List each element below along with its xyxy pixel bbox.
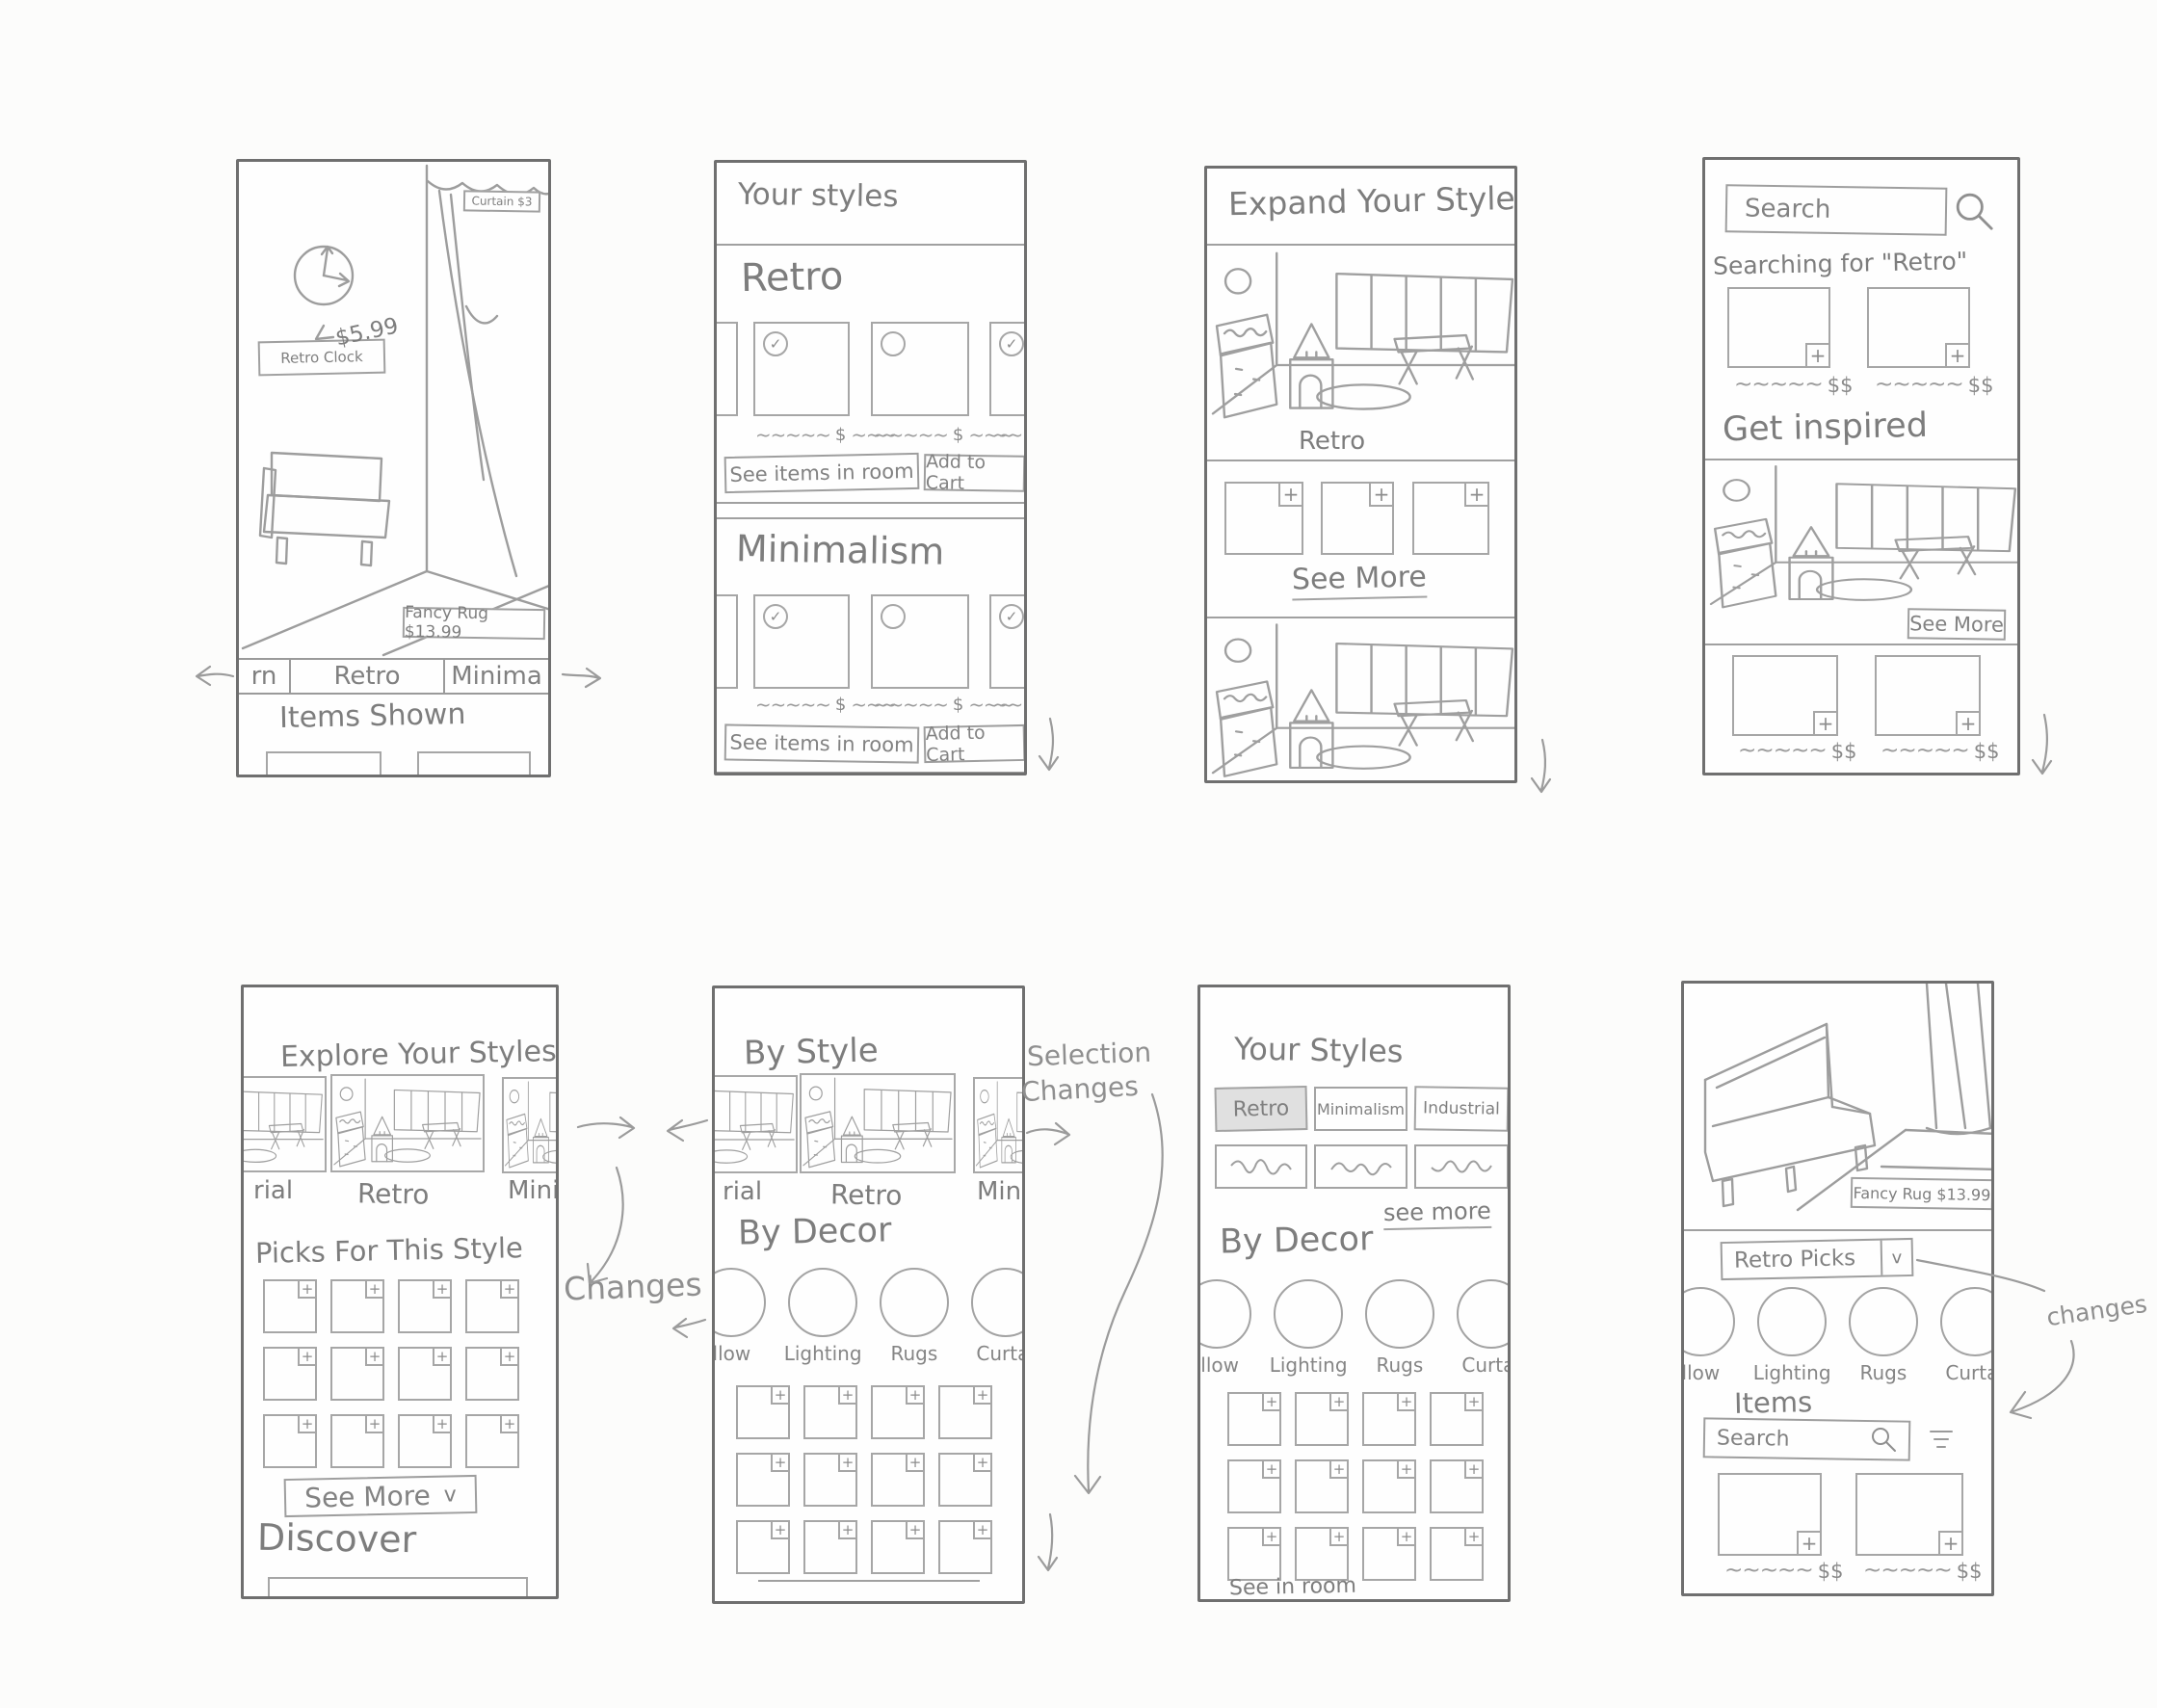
style-thumbnail-minimalism[interactable] [502, 1077, 559, 1173]
style-chip-industrial[interactable]: Industrial [1414, 1086, 1510, 1132]
product-card[interactable] [871, 322, 969, 416]
divider [1705, 644, 2017, 645]
arrow-down-icon [2033, 715, 2051, 774]
screen-room-view: Curtain $3 Retro Clock $5.99 Fancy Rug $… [236, 159, 551, 777]
product-card[interactable] [263, 1414, 317, 1468]
product-card[interactable] [330, 1279, 384, 1333]
see-items-in-room-button[interactable]: See items in room [724, 453, 920, 493]
see-more-link[interactable]: See More [1292, 561, 1428, 601]
product-card[interactable] [1430, 1392, 1484, 1446]
section-title-retro: Retro [741, 254, 844, 301]
decor-category-lighting[interactable]: Lighting [777, 1268, 869, 1365]
add-icon[interactable] [1397, 1392, 1416, 1411]
add-icon[interactable] [906, 1453, 925, 1472]
add-icon[interactable] [1262, 1459, 1281, 1479]
style-thumbnail-retro[interactable] [800, 1073, 956, 1173]
room-illustration [239, 162, 551, 658]
category-circle [1365, 1279, 1434, 1349]
swatch-squiggle [1328, 1154, 1395, 1179]
divider [1207, 460, 1514, 461]
product-name-squiggle [992, 696, 1027, 715]
inspiration-room-illustration [1707, 461, 2020, 614]
style-swatch[interactable] [1314, 1144, 1407, 1189]
add-icon[interactable] [1813, 711, 1838, 736]
product-card[interactable] [1362, 1459, 1416, 1513]
discover-title: Discover [257, 1516, 417, 1562]
divider [1684, 1229, 1991, 1231]
price-line: $$ [1881, 740, 2000, 763]
carousel-label: Mini [977, 1177, 1025, 1206]
curtain-price-tag: Curtain $3 [463, 190, 540, 212]
style-thumbnail-industrial[interactable] [712, 1075, 798, 1173]
price-line: $ [992, 695, 1027, 715]
product-card[interactable] [465, 1414, 519, 1468]
product-card[interactable] [736, 1453, 790, 1507]
product-name-squiggle [1724, 1560, 1813, 1582]
curved-arrow-icon [588, 1168, 623, 1283]
picks-title: Picks For This Style [255, 1231, 523, 1270]
arrow-right-icon [563, 669, 600, 687]
add-icon[interactable] [1262, 1392, 1281, 1411]
result-card[interactable] [1867, 287, 1970, 368]
category-circle [1849, 1287, 1918, 1356]
product-card[interactable] [263, 1347, 317, 1401]
screen-your-styles-chips: Your Styles Retro Minimalism Industrial … [1197, 985, 1511, 1602]
divider [717, 517, 1024, 519]
item-card[interactable] [417, 751, 531, 777]
add-icon[interactable] [1805, 343, 1830, 368]
product-name-squiggle [755, 426, 830, 445]
room-thumb-illustration [504, 1079, 559, 1171]
product-card[interactable] [1227, 1527, 1281, 1581]
tab-retro[interactable]: Retro [289, 660, 443, 693]
product-name-squiggle [1875, 374, 1963, 396]
product-card[interactable] [871, 1520, 925, 1574]
category-circle [1757, 1287, 1827, 1356]
chevron-down-icon[interactable]: v [1881, 1240, 1912, 1275]
result-card[interactable] [1727, 287, 1830, 368]
add-icon[interactable] [906, 1520, 925, 1539]
screen-your-styles-list: Your styles Retro $ $ $ See items in roo… [714, 160, 1027, 775]
category-circle [971, 1268, 1025, 1337]
see-in-room-link[interactable]: See in room [1229, 1574, 1357, 1602]
arrow-down-icon [1039, 719, 1058, 770]
page-title: Your styles [738, 177, 899, 215]
product-card[interactable] [803, 1453, 857, 1507]
product-card[interactable] [938, 1520, 992, 1574]
screen-retro-picks: Fancy Rug $13.99 Retro Picks v llow Ligh… [1681, 981, 1994, 1596]
screen-search: Search Searching for "Retro" $$ $$ Get i… [1702, 157, 2020, 775]
product-card[interactable] [263, 1279, 317, 1333]
product-card[interactable] [1224, 482, 1303, 555]
room-thumb-illustration [975, 1079, 1025, 1171]
divider [717, 244, 1024, 246]
decor-category-curtains[interactable]: Curtai [1445, 1279, 1511, 1377]
add-icon[interactable] [1797, 1531, 1822, 1556]
product-card[interactable] [753, 594, 850, 689]
carousel-label: rial [253, 1176, 293, 1205]
selected-check-icon[interactable] [999, 604, 1024, 629]
item-card[interactable] [266, 751, 381, 777]
decor-category-pillows[interactable]: llow [712, 1268, 777, 1365]
annotation-changes-small: changes [2044, 1290, 2148, 1331]
add-icon[interactable] [1464, 1527, 1484, 1546]
product-card[interactable] [714, 322, 738, 416]
add-icon[interactable] [1369, 482, 1394, 507]
search-input[interactable]: Search [1725, 184, 1948, 236]
long-curved-arrow-icon [1075, 1094, 1163, 1493]
product-card[interactable] [1430, 1527, 1484, 1581]
product-name-squiggle [1863, 1560, 1952, 1582]
page-title: By Style [744, 1032, 879, 1073]
decor-categories: llow Lighting Rugs Curtai [1681, 1287, 1994, 1384]
curved-arrow-icon [2011, 1341, 2074, 1418]
retro-room-illustration [1209, 248, 1517, 425]
add-icon[interactable] [500, 1347, 519, 1366]
add-icon[interactable] [973, 1520, 992, 1539]
product-card[interactable] [736, 1385, 790, 1439]
by-decor-title: By Decor [738, 1211, 892, 1252]
screen-expand-your-styles: Expand Your Styles Retro See More [1204, 166, 1517, 783]
product-card[interactable] [330, 1414, 384, 1468]
product-card[interactable] [938, 1385, 992, 1439]
search-icon[interactable] [1869, 1425, 1898, 1454]
product-card[interactable] [753, 322, 850, 416]
add-icon[interactable] [771, 1385, 790, 1405]
carousel-label: Retro [830, 1178, 903, 1211]
add-icon[interactable] [1938, 1531, 1963, 1556]
result-card[interactable] [1875, 655, 1981, 736]
see-items-in-room-button[interactable]: See items in room [724, 723, 920, 763]
price-line: $ [992, 425, 1027, 445]
product-card[interactable] [803, 1520, 857, 1574]
decor-category-curtains[interactable]: Curtai [1929, 1287, 1994, 1384]
category-circle [1940, 1287, 1994, 1356]
add-icon[interactable] [906, 1385, 925, 1405]
add-icon[interactable] [365, 1279, 384, 1299]
price-line: $$ [1734, 374, 1854, 397]
carousel-label: rial [723, 1177, 762, 1206]
decor-category-pillows[interactable]: illow [1197, 1279, 1263, 1377]
add-icon[interactable] [1278, 482, 1303, 507]
arrow-down-icon [1039, 1514, 1057, 1570]
swatch-squiggle [1227, 1154, 1295, 1179]
add-icon[interactable] [1262, 1527, 1281, 1546]
add-icon[interactable] [298, 1279, 317, 1299]
decor-category-lighting[interactable]: Lighting [1263, 1279, 1355, 1377]
swatch-squiggle [1428, 1154, 1495, 1179]
section-title-minimalism: Minimalism [736, 527, 945, 572]
product-card[interactable] [1362, 1527, 1416, 1581]
add-icon[interactable] [838, 1453, 857, 1472]
divider [758, 1580, 980, 1582]
product-name-squiggle [755, 696, 830, 715]
get-inspired-title: Get inspired [1723, 407, 1929, 449]
room-style-label: Retro [1299, 427, 1365, 456]
screen-explore-your-styles: Explore Your Styles rial Retro Mini Pick… [241, 985, 559, 1599]
decor-grid [1227, 1392, 1497, 1581]
add-to-cart-button[interactable]: Add to Cart [924, 724, 1026, 763]
screen-by-style: By Style rial Retro Mini By Decor llow L… [712, 985, 1025, 1604]
chevron-down-icon: v [443, 1483, 457, 1507]
arrow-left-icon [668, 1120, 707, 1141]
decor-category-rugs[interactable]: Rugs [869, 1268, 960, 1365]
annotation-changes: Changes [563, 1266, 702, 1308]
category-circle [1274, 1279, 1343, 1349]
see-more-link[interactable]: see more [1383, 1197, 1491, 1230]
carousel-label: Retro [357, 1177, 430, 1210]
category-circle [1457, 1279, 1511, 1349]
product-card[interactable] [1227, 1392, 1281, 1446]
product-name-squiggle [992, 426, 1027, 445]
decor-category-rugs[interactable]: Rugs [1355, 1279, 1446, 1377]
product-card[interactable] [736, 1520, 790, 1574]
arrow-left-icon [673, 1319, 705, 1337]
add-icon[interactable] [1464, 1392, 1484, 1411]
price-line: $$ [1738, 740, 1857, 763]
product-card[interactable] [398, 1347, 452, 1401]
wireframe-sketch-page: Curtain $3 Retro Clock $5.99 Fancy Rug $… [0, 0, 2157, 1708]
product-name-squiggle [873, 426, 948, 445]
product-card[interactable] [803, 1385, 857, 1439]
decor-category-lighting[interactable]: Lighting [1747, 1287, 1838, 1384]
search-icon[interactable] [1954, 191, 1994, 231]
decor-category-rugs[interactable]: Rugs [1838, 1287, 1930, 1384]
add-icon[interactable] [973, 1385, 992, 1405]
add-icon[interactable] [500, 1414, 519, 1433]
picks-dropdown[interactable]: Retro Picks v [1721, 1238, 1914, 1280]
tab-minimalism[interactable]: Minima [443, 660, 548, 693]
category-circle [880, 1268, 949, 1337]
product-name-squiggle [1738, 740, 1827, 762]
divider [1207, 617, 1514, 618]
product-card[interactable] [1295, 1527, 1349, 1581]
annotation-selection-changes: Changes [1020, 1070, 1139, 1108]
add-icon[interactable] [973, 1453, 992, 1472]
product-name-squiggle [873, 696, 948, 715]
picks-grid [263, 1279, 533, 1468]
add-icon[interactable] [433, 1414, 452, 1433]
product-card[interactable] [938, 1453, 992, 1507]
product-card[interactable] [1412, 482, 1489, 555]
add-icon[interactable] [1945, 343, 1970, 368]
style-swatch[interactable] [1215, 1144, 1307, 1189]
divider [1705, 459, 2017, 460]
arrow-left-icon [197, 667, 233, 685]
product-card[interactable] [398, 1414, 452, 1468]
add-icon[interactable] [1464, 1459, 1484, 1479]
page-title: Expand Your Styles [1228, 179, 1517, 223]
add-icon[interactable] [1329, 1527, 1349, 1546]
divider [717, 502, 1024, 504]
add-icon[interactable] [771, 1520, 790, 1539]
decor-grid [736, 1385, 1006, 1574]
product-name-squiggle [1881, 740, 1969, 762]
see-more-button[interactable]: See Morev [284, 1475, 478, 1517]
category-circle [788, 1268, 857, 1337]
price-line: $$ [1875, 374, 1994, 397]
discover-card[interactable] [268, 1577, 528, 1599]
style-thumbnail-retro[interactable] [330, 1074, 485, 1172]
add-icon[interactable] [1464, 482, 1489, 507]
see-more-button[interactable]: See More [1907, 608, 2006, 641]
product-card[interactable] [398, 1279, 452, 1333]
rug-price-tag: Fancy Rug $13.99 [403, 607, 545, 640]
style-swatch[interactable] [1414, 1144, 1509, 1189]
add-icon[interactable] [433, 1279, 452, 1299]
add-icon[interactable] [365, 1347, 384, 1366]
category-circle [712, 1268, 766, 1337]
annotation-selection: Selection [1026, 1037, 1151, 1072]
room-thumb-illustration [802, 1075, 954, 1171]
selected-check-icon[interactable] [763, 331, 788, 356]
add-icon[interactable] [298, 1347, 317, 1366]
arrow-right-icon [1027, 1123, 1069, 1144]
divider [717, 772, 1024, 774]
decor-category-pillows[interactable]: llow [1681, 1287, 1747, 1384]
add-icon[interactable] [838, 1385, 857, 1405]
items-title: Items [1734, 1385, 1813, 1420]
page-title: Explore Your Styles [280, 1035, 557, 1074]
add-icon[interactable] [1329, 1459, 1349, 1479]
product-card[interactable] [1295, 1459, 1349, 1513]
tab-partial[interactable]: rn [239, 660, 289, 693]
product-card[interactable] [1430, 1459, 1484, 1513]
room-thumb-illustration [241, 1078, 325, 1170]
arrow-right-icon [578, 1117, 634, 1138]
select-circle-icon[interactable] [881, 604, 906, 629]
product-card[interactable] [1227, 1459, 1281, 1513]
style-chip-retro[interactable]: Retro [1215, 1086, 1308, 1132]
product-card[interactable] [1362, 1392, 1416, 1446]
product-card[interactable] [989, 322, 1027, 416]
select-circle-icon[interactable] [881, 331, 906, 356]
add-icon[interactable] [298, 1414, 317, 1433]
add-icon[interactable] [433, 1347, 452, 1366]
page-title: Your Styles [1234, 1031, 1404, 1070]
carousel-label: Mini [508, 1176, 559, 1205]
search-status-text: Searching for "Retro" [1713, 247, 1968, 280]
product-card[interactable] [989, 594, 1027, 689]
add-icon[interactable] [365, 1414, 384, 1433]
room-thumb-illustration [712, 1077, 796, 1171]
add-icon[interactable] [771, 1453, 790, 1472]
style-tabbar: rn Retro Minima [239, 658, 548, 695]
price-line: $$ [1863, 1560, 1983, 1583]
room-thumb-illustration [332, 1076, 483, 1170]
add-icon[interactable] [1397, 1527, 1416, 1546]
decor-category-curtains[interactable]: Curtai [960, 1268, 1025, 1365]
add-icon[interactable] [1329, 1392, 1349, 1411]
filter-icon[interactable] [1925, 1423, 1958, 1456]
add-icon[interactable] [838, 1520, 857, 1539]
by-decor-title: By Decor [1220, 1220, 1374, 1261]
item-card[interactable] [1718, 1473, 1822, 1556]
divider [1207, 244, 1514, 246]
product-card[interactable] [871, 1453, 925, 1507]
selected-check-icon[interactable] [763, 604, 788, 629]
price-line: $$ [1724, 1560, 1844, 1583]
selected-check-icon[interactable] [999, 331, 1024, 356]
product-card[interactable] [330, 1347, 384, 1401]
decor-categories: illow Lighting Rugs Curtai [1197, 1279, 1511, 1377]
result-card[interactable] [1732, 655, 1838, 736]
style-thumbnail-minimalism[interactable] [973, 1077, 1025, 1173]
add-icon[interactable] [500, 1279, 519, 1299]
rug-price-tag: Fancy Rug $13.99 [1851, 1177, 1993, 1210]
add-icon[interactable] [1956, 711, 1981, 736]
style-chip-minimalism[interactable]: Minimalism [1314, 1087, 1407, 1131]
room-illustration [1209, 619, 1517, 783]
category-circle [1197, 1279, 1251, 1349]
category-circle [1681, 1287, 1735, 1356]
product-name-squiggle [1734, 374, 1823, 396]
product-card[interactable] [871, 1385, 925, 1439]
product-card[interactable] [465, 1279, 519, 1333]
item-card[interactable] [1855, 1473, 1963, 1556]
product-card[interactable] [714, 594, 738, 689]
items-shown-title: Items Shown [279, 697, 466, 735]
decor-categories: llow Lighting Rugs Curtai [712, 1268, 1025, 1365]
style-thumbnail-industrial[interactable] [241, 1076, 327, 1172]
product-card[interactable] [871, 594, 969, 689]
product-card[interactable] [1295, 1392, 1349, 1446]
add-icon[interactable] [1397, 1459, 1416, 1479]
product-card[interactable] [465, 1347, 519, 1401]
add-to-cart-button[interactable]: Add to Cart [924, 454, 1026, 492]
arrow-down-icon [1532, 740, 1550, 792]
product-card[interactable] [1321, 482, 1394, 555]
